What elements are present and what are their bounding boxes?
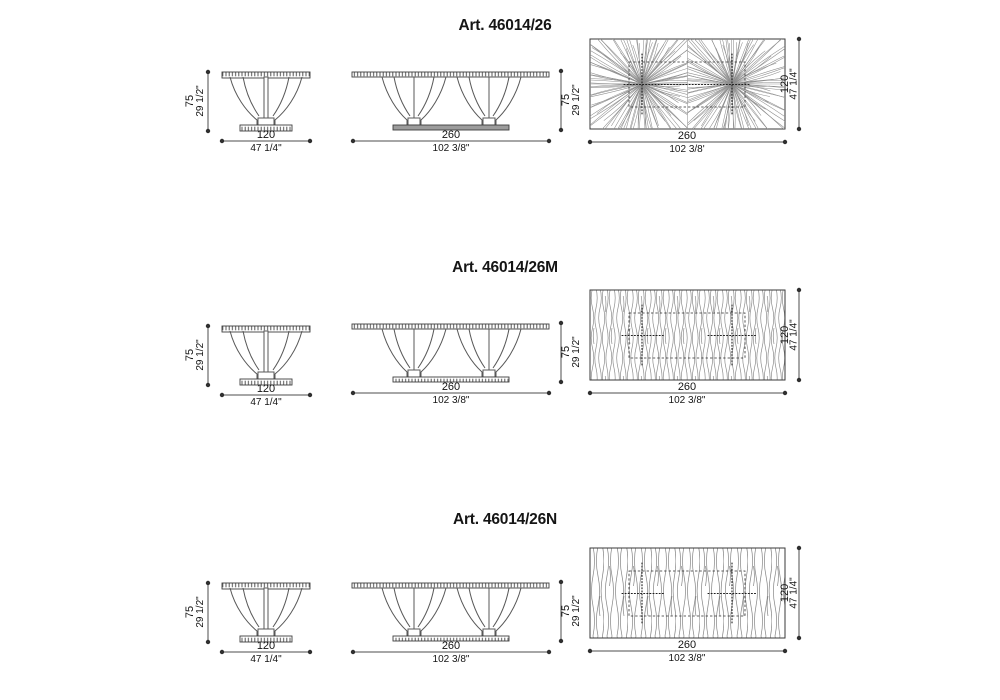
column-foot [483, 370, 495, 377]
width-in-label: 47 1/4" [250, 143, 282, 154]
article-title: Art. 46014/26M [0, 259, 1000, 277]
side-elevation-drawing: 75 29 1/2" 120 47 1/4" [186, 581, 336, 677]
column-foot [408, 629, 420, 636]
length-in-label: 102 3/8" [669, 395, 706, 406]
length-in-label: 102 3/8" [433, 654, 470, 665]
length-in-label: 102 3/8" [433, 395, 470, 406]
height-dimension: 75 29 1/2" [184, 581, 210, 644]
height-in-label: 29 1/2" [195, 85, 206, 117]
front-elevation-drawing: 75 29 1/2" 260 102 3/8" [340, 70, 590, 166]
pedestal-legs [382, 329, 521, 377]
center-column [264, 588, 268, 629]
length-in-label: 102 3/8' [669, 144, 704, 155]
width-in-label: 47 1/4" [250, 654, 282, 665]
height-dimension: 75 29 1/2" [184, 324, 210, 387]
pedestal-legs [382, 77, 521, 125]
width-cm-label: 120 [257, 383, 275, 395]
column-foot [408, 370, 420, 377]
length-cm-label: 260 [678, 639, 696, 651]
top-plan-drawing: 120 47 1/4" 260 102 3/8' [580, 37, 830, 159]
length-cm-label: 260 [678, 130, 696, 142]
column-foot [258, 118, 274, 125]
table-top-edge [352, 583, 549, 588]
height-dimension: 75 29 1/2" [559, 321, 582, 384]
side-elevation-drawing: 75 29 1/2" 120 47 1/4" [186, 324, 336, 420]
top-plan-drawing: 120 47 1/4" 260 102 3/8" [580, 546, 830, 668]
column-foot [258, 372, 274, 379]
column-foot [258, 629, 274, 636]
length-cm-label: 260 [442, 381, 460, 393]
length-dimension: 260 102 3/8" [588, 381, 787, 406]
center-column [264, 77, 268, 118]
width-cm-label: 120 [257, 129, 275, 141]
pedestal-legs [382, 588, 521, 636]
length-dimension: 260 102 3/8" [351, 640, 551, 665]
length-dimension: 260 102 3/8" [351, 129, 551, 154]
front-elevation-drawing: 75 29 1/2" 260 102 3/8" [340, 322, 590, 418]
table-top-surface [590, 548, 785, 638]
length-cm-label: 260 [442, 129, 460, 141]
height-in-label: 29 1/2" [195, 339, 206, 371]
height-dimension: 75 29 1/2" [559, 69, 582, 132]
column-foot [483, 118, 495, 125]
depth-in-label: 47 1/4" [789, 577, 800, 609]
width-cm-label: 120 [257, 640, 275, 652]
side-elevation-drawing: 75 29 1/2" 120 47 1/4" [186, 70, 336, 166]
column-foot [483, 629, 495, 636]
top-plan-drawing: 120 47 1/4" 260 102 3/8" [580, 288, 830, 410]
column-foot [408, 118, 420, 125]
article-title: Art. 46014/26N [0, 511, 1000, 529]
article-title: Art. 46014/26 [0, 17, 1000, 35]
width-dimension: 120 47 1/4" [220, 383, 312, 408]
height-dimension: 75 29 1/2" [184, 70, 210, 133]
table-top-edge [352, 72, 549, 77]
length-cm-label: 260 [678, 381, 696, 393]
length-in-label: 102 3/8" [433, 143, 470, 154]
length-dimension: 260 102 3/8" [588, 639, 787, 664]
front-elevation-drawing: 75 29 1/2" 260 102 3/8" [340, 581, 590, 677]
table-top-surface [590, 290, 785, 380]
depth-in-label: 47 1/4" [789, 319, 800, 351]
length-cm-label: 260 [442, 640, 460, 652]
length-dimension: 260 102 3/8' [588, 130, 787, 155]
width-in-label: 47 1/4" [250, 397, 282, 408]
length-dimension: 260 102 3/8" [351, 381, 551, 406]
height-in-label: 29 1/2" [195, 596, 206, 628]
center-column [264, 331, 268, 372]
height-dimension: 75 29 1/2" [559, 580, 582, 643]
width-dimension: 120 47 1/4" [220, 640, 312, 665]
length-in-label: 102 3/8" [669, 653, 706, 664]
table-top-edge [352, 324, 549, 329]
depth-in-label: 47 1/4" [789, 68, 800, 100]
width-dimension: 120 47 1/4" [220, 129, 312, 154]
